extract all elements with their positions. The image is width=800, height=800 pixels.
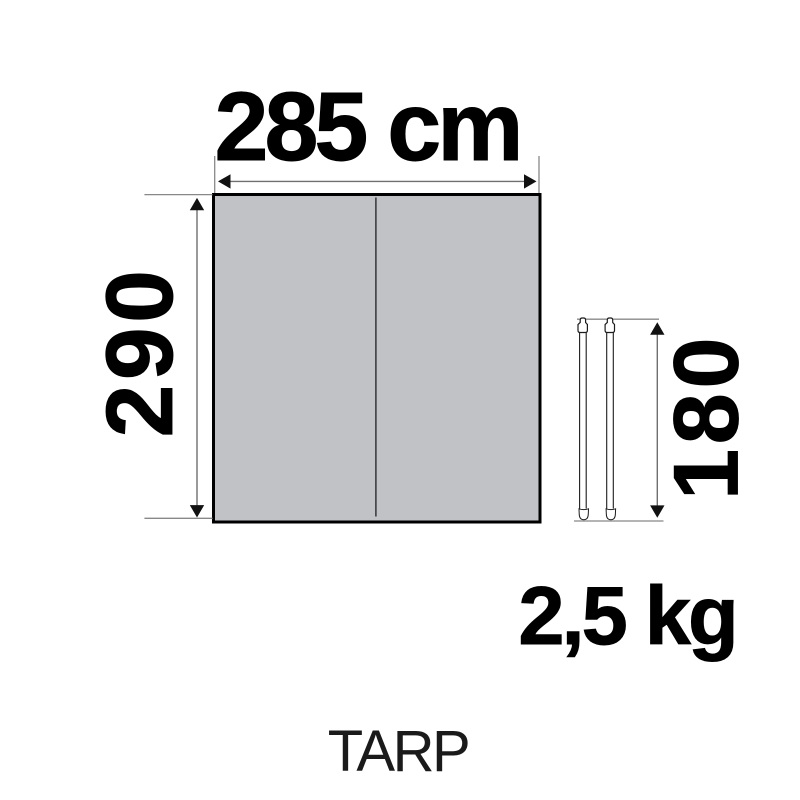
svg-text:2,5 kg: 2,5 kg [518,569,735,662]
svg-text:TARP: TARP [328,719,468,784]
svg-text:180: 180 [656,333,758,500]
svg-text:285 cm: 285 cm [215,72,520,181]
svg-text:290: 290 [87,265,193,437]
